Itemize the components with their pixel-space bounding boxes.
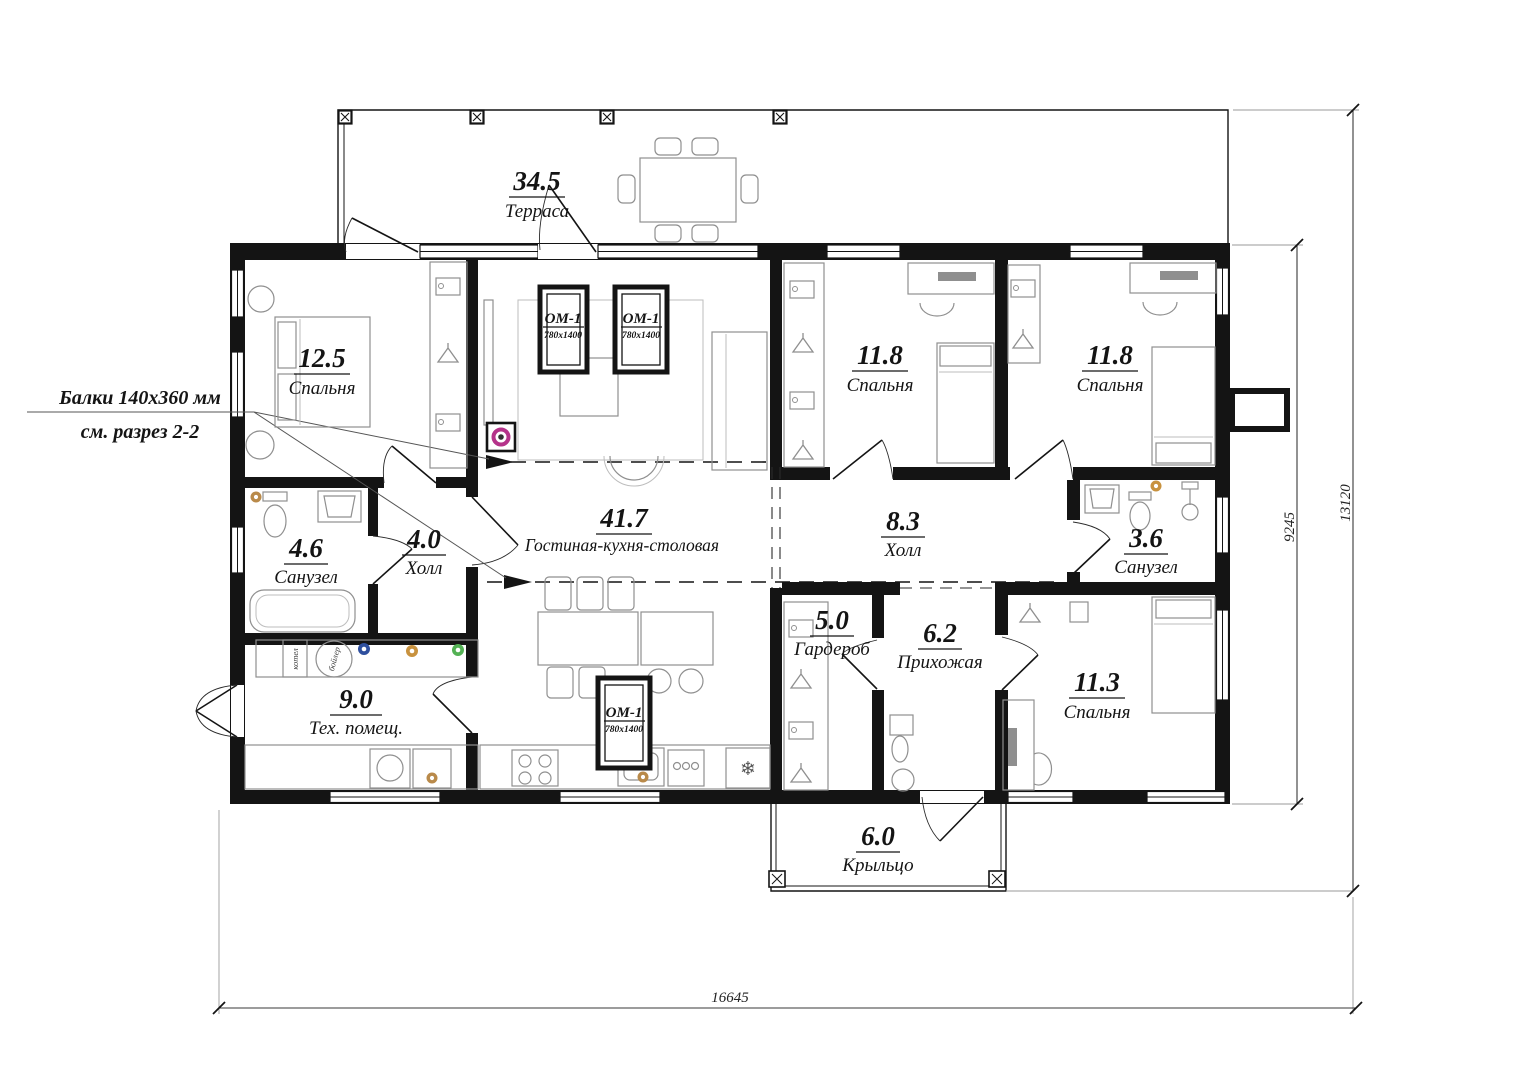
entry-furniture: [890, 715, 914, 791]
bed: [1152, 597, 1215, 713]
terrace-zone: [338, 110, 1228, 243]
terrace-column-icon: [774, 111, 787, 124]
roof-window-label: ОМ-1: [545, 311, 582, 327]
room-label-bedroom3: 11.8 Спальня: [1077, 340, 1144, 396]
room-area: 6.0: [861, 821, 895, 851]
room-area: 5.0: [815, 605, 849, 635]
kotel-label: котел: [290, 648, 300, 670]
dim-width: 16645: [711, 990, 749, 1006]
room-name: Гардероб: [793, 639, 871, 660]
dishwasher: [668, 750, 704, 786]
fridge-snowflake-icon: ❄: [740, 758, 756, 780]
porch-post-icon: [989, 871, 1005, 887]
floor-plan-page: Балки 140x360 мм см. разрез 2-2: [0, 0, 1525, 1080]
room-name: Терраса: [505, 201, 569, 222]
room-label-bath1: 4.6 Санузел: [274, 533, 338, 588]
terrace-column-icon: [339, 111, 352, 124]
room-name: Холл: [405, 558, 443, 579]
terrace-outline: [338, 110, 1228, 243]
room-area: 4.0: [406, 524, 441, 554]
toilet: [263, 492, 287, 501]
room-name: Спальня: [289, 378, 356, 399]
room-label-bath2: 3.6 Санузел: [1114, 523, 1178, 578]
room-name: Спальня: [847, 375, 914, 396]
room-area: 11.8: [857, 340, 903, 370]
room-name: Крыльцо: [841, 855, 913, 876]
dimension-right-outer: 13120: [1233, 104, 1359, 897]
room-label-bedroom1: 12.5 Спальня: [289, 343, 356, 399]
beam-annotation-line1: Балки 140x360 мм: [58, 387, 221, 409]
roof-window-size: 780x1400: [605, 725, 643, 735]
floor-plan-drawing: Балки 140x360 мм см. разрез 2-2: [0, 0, 1525, 1080]
room-label-living: 41.7 Гостиная-кухня-столовая: [524, 503, 719, 555]
roof-window-label: ОМ-1: [606, 705, 643, 721]
terrace-column-icon: [601, 111, 614, 124]
room-label-porch: 6.0 Крыльцо: [841, 821, 913, 876]
room-label-tech: 9.0 Тех. помещ.: [309, 684, 403, 739]
room-label-hall1: 4.0 Холл: [402, 524, 446, 579]
room-label-bedroom4: 11.3 Спальня: [1064, 667, 1131, 723]
room-area: 4.6: [288, 533, 323, 563]
beam-arrow-icon: [486, 455, 514, 469]
shower-head: [1182, 482, 1198, 489]
dim-depth-inner: 9245: [1282, 512, 1298, 543]
stove: [512, 750, 558, 786]
room-name: Прихожая: [896, 652, 982, 673]
porch-post-icon: [769, 871, 785, 887]
beam-arrow-icon: [504, 575, 532, 589]
roof-window-size: 780x1400: [544, 331, 582, 341]
room-area: 11.8: [1087, 340, 1133, 370]
doors: [196, 185, 1110, 841]
room-name: Тех. помещ.: [309, 718, 403, 739]
room-area: 6.2: [923, 618, 957, 648]
tech-room-equipment: котел бойлер: [245, 640, 649, 789]
room-name: Холл: [884, 540, 922, 561]
chimney: [1232, 391, 1287, 429]
boiler-label: бойлер: [326, 646, 342, 672]
room-label-hall2: 8.3 Холл: [881, 506, 925, 561]
porch-zone: [769, 804, 1353, 891]
dim-depth-outer: 13120: [1338, 484, 1354, 522]
room-area: 3.6: [1128, 523, 1163, 553]
room-label-bedroom2: 11.8 Спальня: [847, 340, 914, 396]
terrace-column-icon: [471, 111, 484, 124]
room-label-entry: 6.2 Прихожая: [896, 618, 982, 673]
room-area: 11.3: [1074, 667, 1120, 697]
room-name: Спальня: [1077, 375, 1144, 396]
flue-symbol: [487, 423, 515, 451]
room-area: 12.5: [298, 343, 345, 373]
beam-annotation: Балки 140x360 мм см. разрез 2-2: [58, 387, 221, 443]
bed: [937, 343, 994, 463]
dimension-bottom: 16645: [213, 810, 1362, 1014]
roof-window-label: ОМ-1: [623, 311, 660, 327]
room-area: 8.3: [886, 506, 920, 536]
bed: [1152, 347, 1215, 465]
room-name: Санузел: [1114, 557, 1178, 578]
dimension-right-inner: 9245: [1232, 239, 1303, 810]
bathtub: [250, 590, 355, 632]
roof-window-size: 780x1400: [622, 331, 660, 341]
terrace-dining-set: [618, 138, 758, 242]
room-name: Гостиная-кухня-столовая: [524, 535, 719, 555]
room-name: Санузел: [274, 567, 338, 588]
room-area: 34.5: [512, 166, 560, 196]
beam-annotation-line2: см. разрез 2-2: [81, 421, 199, 443]
roof-window-2: ОМ-1 780x1400: [615, 287, 667, 372]
bedroom1-furniture: [246, 262, 467, 468]
toilet: [1129, 492, 1151, 500]
room-area: 41.7: [599, 503, 649, 533]
roof-window-1: ОМ-1 780x1400: [540, 287, 587, 372]
room-label-terrace: 34.5 Терраса: [505, 166, 569, 222]
room-name: Спальня: [1064, 702, 1131, 723]
roof-window-3: ОМ-1 780x1400: [598, 678, 650, 768]
room-area: 9.0: [339, 684, 373, 714]
